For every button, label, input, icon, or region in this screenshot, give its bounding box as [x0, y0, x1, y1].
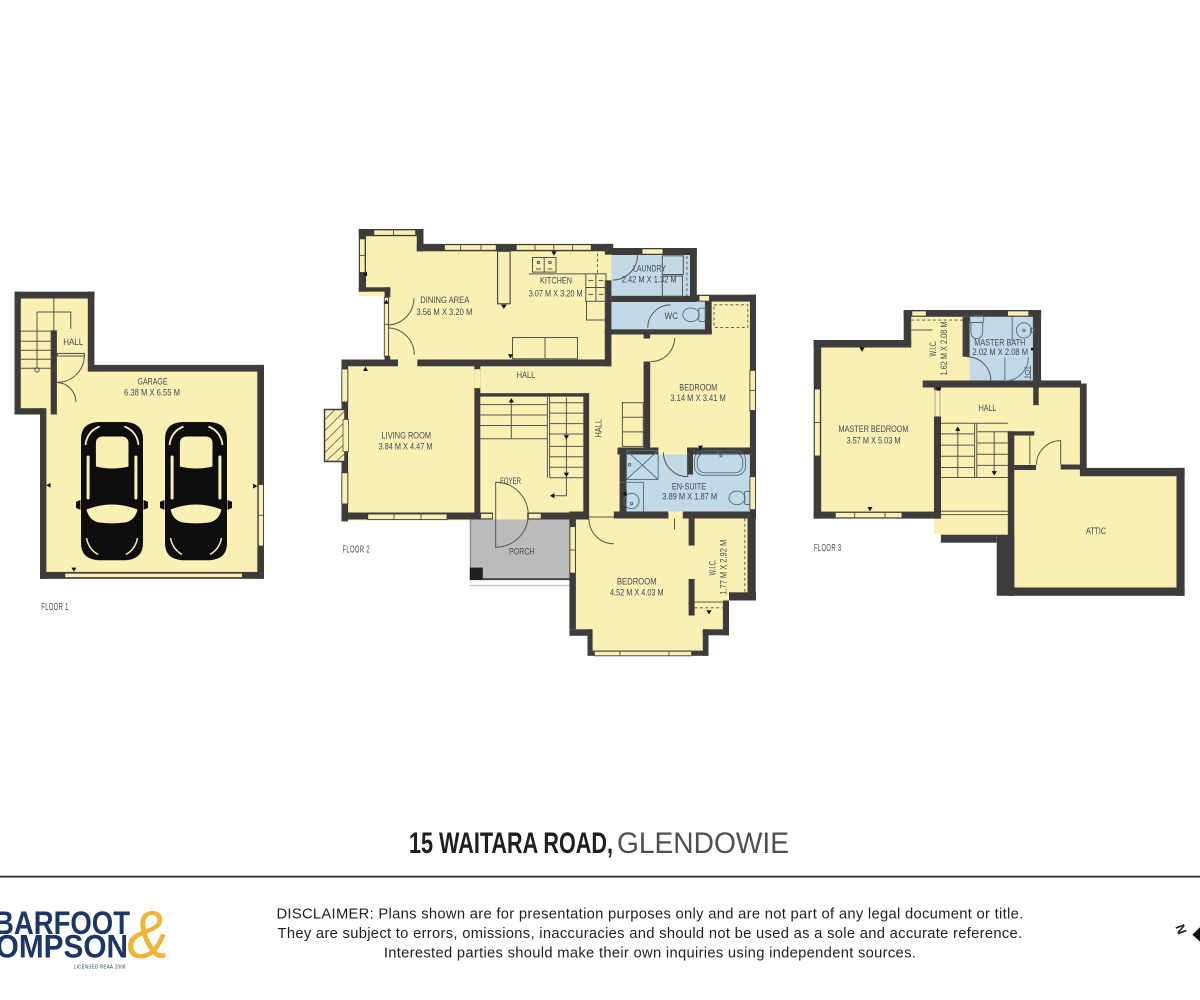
svg-text:BEDROOM: BEDROOM [679, 383, 717, 394]
svg-text:FOYER: FOYER [500, 476, 521, 487]
svg-text:GARAGE: GARAGE [138, 377, 168, 388]
svg-text:FLOOR 1: FLOOR 1 [41, 602, 69, 613]
svg-text:LIVING ROOM: LIVING ROOM [382, 431, 432, 442]
svg-text:HALL: HALL [594, 419, 605, 438]
svg-text:KITCHEN: KITCHEN [540, 276, 572, 287]
svg-text:HALL: HALL [517, 370, 536, 381]
svg-text:MASTER BEDROOM: MASTER BEDROOM [839, 424, 909, 435]
svg-text:FLOOR 3: FLOOR 3 [814, 543, 842, 554]
svg-text:HALL: HALL [979, 403, 997, 414]
svg-text:1.62 M X 2.08 M: 1.62 M X 2.08 M [939, 322, 949, 376]
svg-text:LAUNDRY: LAUNDRY [633, 263, 666, 274]
svg-text:They are subject to errors, om: They are subject to errors, omissions, i… [278, 926, 1023, 942]
svg-text:WC: WC [665, 311, 679, 322]
svg-text:W.I.C.: W.I.C. [708, 560, 719, 576]
svg-text:DINING AREA: DINING AREA [420, 295, 470, 306]
svg-text:LICENSED REAA 2008: LICENSED REAA 2008 [74, 965, 126, 971]
svg-text:15 WAITARA ROAD,GLENDOWIE: 15 WAITARA ROAD,GLENDOWIE [409, 827, 789, 860]
svg-text:HALL: HALL [63, 337, 83, 348]
svg-text:2.42 M X 1.32 M: 2.42 M X 1.32 M [622, 275, 677, 285]
svg-text:3.14 M X 3.41 M: 3.14 M X 3.41 M [670, 393, 726, 403]
svg-text:3.57 M X 5.03 M: 3.57 M X 5.03 M [847, 436, 901, 446]
svg-text:3.07 M X 3.20 M: 3.07 M X 3.20 M [529, 288, 583, 298]
svg-text:Interested parties should make: Interested parties should make their own… [384, 946, 916, 962]
svg-text:W.I.C.: W.I.C. [928, 341, 939, 357]
svg-text:4.52 M X 4.03 M: 4.52 M X 4.03 M [610, 588, 664, 598]
svg-text:THOMPSON: THOMPSON [0, 929, 128, 965]
svg-text:3.84 M X 4.47 M: 3.84 M X 4.47 M [379, 442, 433, 452]
svg-text:3.56 M X 3.20 M: 3.56 M X 3.20 M [416, 307, 472, 317]
svg-text:BEDROOM: BEDROOM [617, 577, 657, 588]
svg-text:ATTIC: ATTIC [1086, 526, 1106, 537]
svg-text:3.89 M X 1.87 M: 3.89 M X 1.87 M [662, 491, 717, 501]
svg-text:1.77 M X 2.92 M: 1.77 M X 2.92 M [719, 540, 729, 595]
svg-text:PORCH: PORCH [509, 547, 535, 558]
svg-text:2.02 M X 2.08 M: 2.02 M X 2.08 M [973, 347, 1029, 357]
svg-text:DISCLAIMER: Plans shown are fo: DISCLAIMER: Plans shown are for presenta… [276, 907, 1023, 923]
svg-text:FLOOR 2: FLOOR 2 [343, 545, 371, 556]
svg-text:6.38 M X 6.55 M: 6.38 M X 6.55 M [124, 388, 180, 398]
svg-text:&: & [127, 897, 169, 973]
